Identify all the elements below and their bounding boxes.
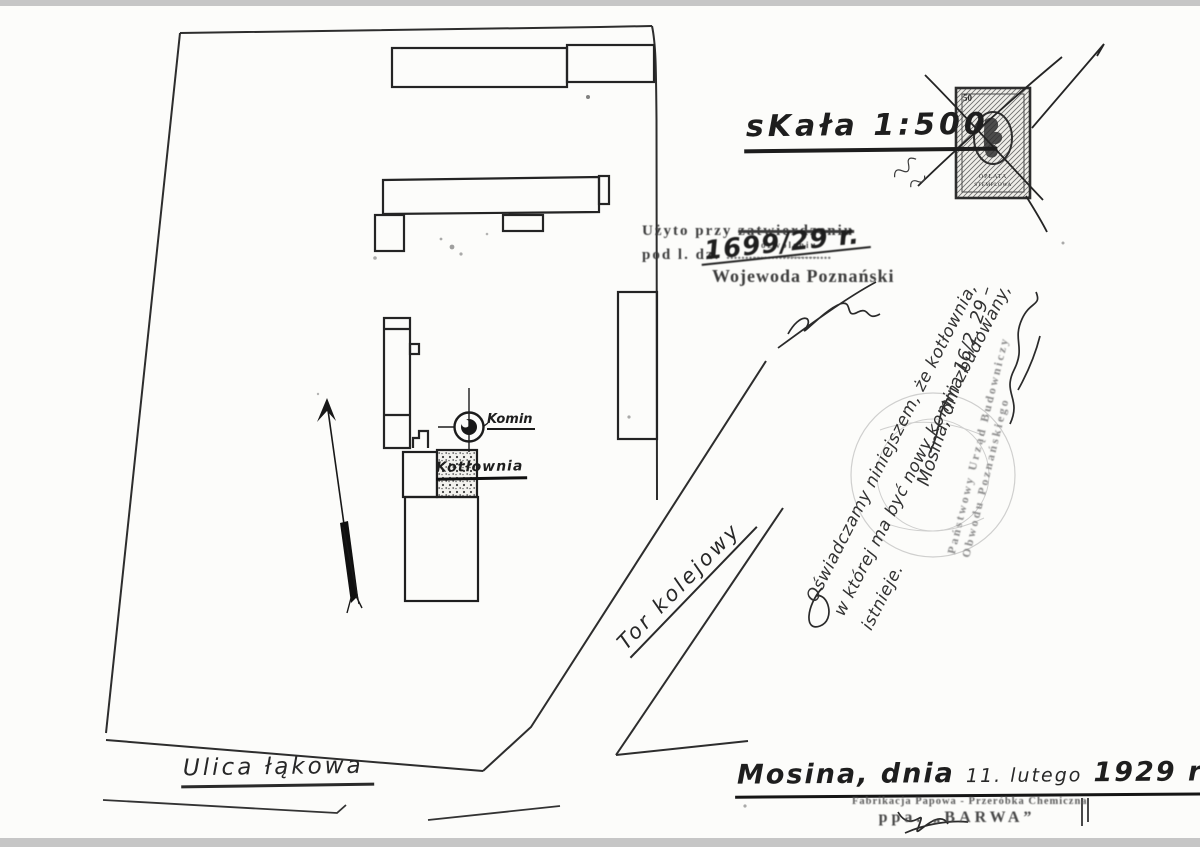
approval-stamp: Użyto przy zatwierdzeniu pozwoleniu pod … — [642, 219, 854, 267]
building-south-large — [405, 497, 478, 601]
dateline-year: 1929 r. — [1093, 756, 1200, 788]
approval-line2: pod l. dz. ............................ … — [642, 243, 854, 267]
site-plan-drawing: 50 OPŁATA STEMPLOWA — [0, 0, 1200, 847]
parcel-boundary-north — [180, 26, 652, 33]
building-north-long — [392, 48, 567, 87]
street-edge-mid — [428, 806, 560, 820]
revenue-stamp-value: 50 — [963, 93, 973, 103]
parcel-boundary-west — [106, 33, 180, 733]
street-edge-left — [103, 800, 346, 813]
building-mid-notch — [599, 176, 609, 204]
street-lines — [103, 800, 560, 820]
revenue-stamp-word2: STEMPLOWA — [974, 182, 1011, 188]
company-stamp-line1: Fabrikacja Papowa - Przeróbka Chemiczna — [852, 796, 1062, 807]
building-east-tall — [618, 292, 657, 439]
building-west-tall — [384, 318, 410, 448]
dateline-date: 11. lutego — [966, 764, 1083, 787]
scale-title: sKała 1:500 — [744, 107, 997, 154]
document-dateline: Mosina, dnia 11. lutego 1929 r. — [735, 756, 1200, 798]
boiler-annex — [403, 452, 437, 497]
building-west-notch — [410, 344, 419, 354]
building-north-annex — [567, 45, 654, 82]
building-mid-south-annex — [503, 215, 543, 231]
stamp-cancellation-scribble — [892, 156, 930, 194]
label-boiler-house: Kotłownia — [436, 458, 528, 481]
revenue-stamp-word1: OPŁATA — [979, 174, 1008, 180]
buildings — [375, 45, 657, 448]
label-chimney: Komin — [487, 412, 535, 430]
company-stamp: Fabrikacja Papowa - Przeróbka Chemiczna … — [852, 796, 1062, 827]
dateline-city: Mosina, dnia — [737, 758, 955, 791]
building-west-step — [413, 431, 428, 448]
road-edge-right — [616, 741, 748, 755]
scanned-site-plan-document: 50 OPŁATA STEMPLOWA — [0, 0, 1200, 847]
signature-voivode-office — [778, 282, 880, 348]
label-street: Ulica łąkowa — [181, 753, 374, 789]
north-arrow — [317, 398, 362, 613]
chimney-symbol — [438, 388, 488, 452]
voivode-stamp: Wojewoda Poznański — [712, 266, 895, 287]
company-stamp-line2: ppa. „BARWA” — [852, 809, 1062, 827]
building-mid-long — [383, 177, 599, 214]
building-mid-west-annex — [375, 215, 404, 251]
